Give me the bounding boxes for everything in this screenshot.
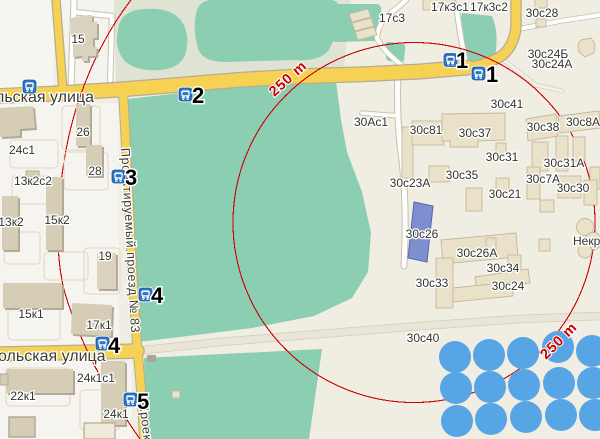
svg-text:26: 26 [76, 125, 90, 139]
svg-text:22к1: 22к1 [10, 389, 36, 403]
svg-text:30с24: 30с24 [492, 279, 525, 293]
svg-text:4: 4 [151, 283, 164, 308]
svg-text:30Ас1: 30Ас1 [354, 115, 388, 129]
svg-text:1: 1 [486, 62, 498, 87]
svg-text:17с3: 17с3 [379, 11, 405, 25]
svg-text:30с33: 30с33 [416, 276, 449, 290]
svg-text:13к2с2: 13к2с2 [14, 174, 52, 188]
svg-text:30с38: 30с38 [527, 120, 560, 134]
svg-text:24к1с1: 24к1с1 [77, 371, 115, 385]
svg-text:30с31А: 30с31А [544, 156, 585, 170]
svg-text:30с37: 30с37 [459, 126, 492, 140]
svg-text:13к2: 13к2 [0, 215, 24, 229]
svg-text:30с28: 30с28 [526, 6, 559, 20]
svg-text:17к3с1: 17к3с1 [431, 0, 469, 14]
svg-text:17к1: 17к1 [86, 318, 112, 332]
svg-text:30с26А: 30с26А [457, 246, 498, 260]
svg-text:льская улица: льская улица [0, 89, 94, 106]
svg-text:Некрас: Некрас [573, 234, 600, 248]
svg-text:4: 4 [108, 333, 121, 358]
svg-text:30с24А: 30с24А [532, 57, 573, 71]
svg-text:30с26: 30с26 [406, 227, 439, 241]
svg-text:1: 1 [456, 48, 468, 73]
svg-text:30с40: 30с40 [407, 331, 440, 345]
svg-text:30с7А: 30с7А [526, 172, 560, 186]
svg-text:30с35: 30с35 [446, 168, 479, 182]
svg-text:30с21: 30с21 [489, 187, 522, 201]
svg-text:2: 2 [192, 83, 204, 108]
svg-text:24с1: 24с1 [9, 143, 35, 157]
svg-text:15к1: 15к1 [18, 307, 44, 321]
svg-text:24к1: 24к1 [103, 407, 129, 421]
svg-text:30с30: 30с30 [557, 181, 590, 195]
svg-text:30с41: 30с41 [491, 97, 524, 111]
svg-text:19: 19 [98, 249, 112, 263]
svg-text:15к2: 15к2 [44, 213, 70, 227]
svg-text:30с81: 30с81 [410, 123, 443, 137]
svg-text:17к3с2: 17к3с2 [470, 0, 508, 14]
svg-text:5: 5 [137, 389, 149, 414]
svg-text:3: 3 [125, 165, 137, 190]
svg-text:30с23А: 30с23А [390, 176, 431, 190]
svg-text:ольская улица: ольская улица [0, 348, 106, 365]
svg-text:30с34: 30с34 [487, 261, 520, 275]
svg-text:30с8А: 30с8А [566, 115, 600, 129]
svg-text:28: 28 [88, 164, 102, 178]
svg-text:30с31: 30с31 [486, 150, 519, 164]
svg-text:15: 15 [71, 32, 85, 46]
